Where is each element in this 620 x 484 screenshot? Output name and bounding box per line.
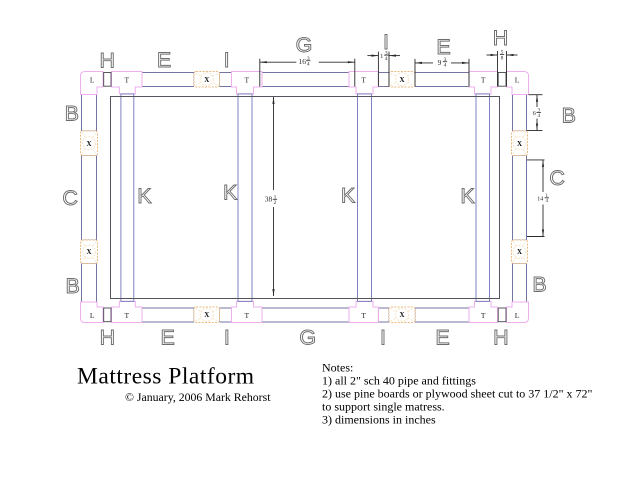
svg-text:3) dimensions in inches: 3) dimensions in inches (322, 413, 436, 427)
svg-text:Notes:: Notes: (322, 361, 353, 375)
svg-text:T: T (361, 311, 366, 320)
svg-text:H: H (493, 326, 509, 350)
svg-text:K: K (460, 184, 475, 208)
svg-text:T: T (245, 76, 250, 85)
svg-text:B: B (66, 274, 80, 298)
svg-text:X: X (399, 311, 404, 319)
svg-text:X: X (399, 76, 404, 84)
svg-text:4: 4 (307, 62, 310, 68)
svg-text:Mattress Platform: Mattress Platform (77, 364, 255, 390)
svg-text:B: B (532, 273, 546, 297)
svg-text:G: G (299, 326, 316, 350)
svg-text:I: I (380, 326, 386, 350)
svg-text:9: 9 (438, 58, 442, 67)
svg-text:L: L (515, 76, 520, 85)
svg-text:8: 8 (501, 55, 504, 61)
svg-text:X: X (204, 76, 209, 84)
svg-text:© January, 2006 Mark Rehorst: © January, 2006 Mark Rehorst (125, 390, 271, 404)
svg-text:T: T (481, 311, 486, 320)
svg-text:14: 14 (537, 197, 543, 203)
svg-text:K: K (223, 181, 238, 205)
svg-text:C: C (549, 166, 565, 190)
svg-text:E: E (435, 326, 449, 350)
svg-text:1: 1 (380, 53, 383, 60)
svg-text:H: H (100, 326, 116, 350)
svg-text:E: E (161, 326, 175, 350)
svg-text:X: X (86, 140, 91, 148)
svg-text:T: T (361, 76, 366, 85)
svg-text:E: E (157, 48, 171, 72)
svg-text:I: I (383, 30, 389, 54)
svg-text:X: X (517, 248, 522, 256)
svg-text:T: T (481, 76, 486, 85)
svg-text:T: T (245, 311, 250, 320)
svg-text:X: X (86, 248, 91, 256)
svg-text:to support single matress.: to support single matress. (322, 400, 445, 414)
svg-text:1) all 2" sch 40 pipe and fitt: 1) all 2" sch 40 pipe and fittings (322, 374, 476, 388)
svg-text:H: H (100, 49, 116, 73)
svg-text:4: 4 (444, 63, 447, 69)
svg-text:X: X (517, 140, 522, 148)
svg-text:H: H (493, 26, 509, 50)
svg-text:K: K (341, 184, 356, 208)
svg-text:16: 16 (298, 57, 306, 66)
svg-text:T: T (125, 311, 130, 320)
svg-text:B: B (65, 102, 79, 126)
svg-text:38: 38 (265, 194, 273, 203)
svg-text:T: T (125, 76, 130, 85)
svg-text:L: L (90, 76, 95, 85)
svg-text:C: C (62, 186, 78, 210)
svg-text:I: I (224, 326, 230, 350)
svg-text:L: L (90, 311, 95, 320)
svg-text:K: K (137, 184, 152, 208)
svg-text:I: I (224, 48, 230, 72)
svg-text:2: 2 (274, 200, 277, 206)
svg-text:E: E (436, 35, 450, 59)
svg-text:2) use pine boards or plywood: 2) use pine boards or plywood sheet cut … (322, 387, 593, 401)
svg-text:L: L (515, 311, 520, 320)
svg-text:4: 4 (385, 56, 388, 62)
svg-text:X: X (204, 311, 209, 319)
svg-text:B: B (562, 103, 576, 127)
svg-text:G: G (296, 33, 313, 57)
